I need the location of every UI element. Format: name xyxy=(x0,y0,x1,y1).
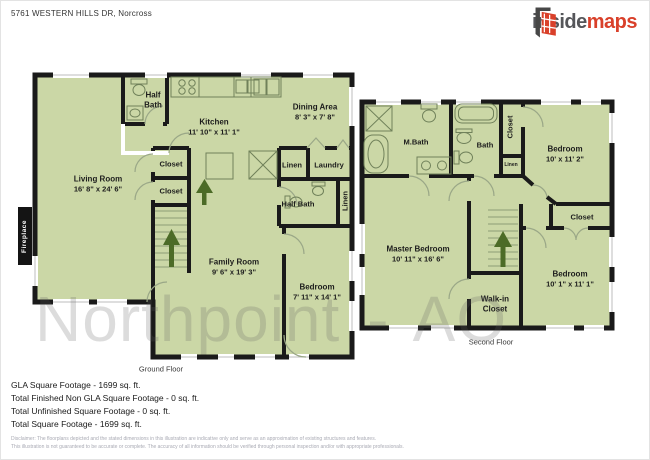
square-footage-summary: GLA Square Footage - 1699 sq. ft. Total … xyxy=(11,379,199,431)
room-label-family: Family Room 9' 6" x 19' 3" xyxy=(209,258,259,277)
room-label-linen: Linen xyxy=(282,161,302,170)
room-label-laundry: Laundry xyxy=(314,161,344,170)
room-label-mbath: M.Bath xyxy=(404,138,429,147)
fireplace-label: Fireplace xyxy=(18,207,32,265)
unfinished-footage-line: Total Unfinished Square Footage - 0 sq. … xyxy=(11,405,199,418)
room-label-linen-second: Linen xyxy=(504,162,517,168)
room-label-closet-right: Closet xyxy=(571,213,594,222)
room-label-dining: Dining Area 8' 3" x 7' 8" xyxy=(293,103,338,122)
non-gla-footage-line: Total Finished Non GLA Square Footage - … xyxy=(11,392,199,405)
room-label-half-bath-top: Half Bath xyxy=(136,90,170,109)
room-label-kitchen: Kitchen 11' 10" x 11' 1" xyxy=(188,118,240,137)
room-label-closet-1: Closet xyxy=(160,160,183,169)
disclaimer-text: Disclaimer: The floorplans depicted and … xyxy=(11,435,631,451)
floorplan-page: { "header": { "address": "5761 WESTERN H… xyxy=(0,0,650,460)
room-label-master: Master Bedroom 10' 11" x 16' 6" xyxy=(386,245,449,264)
room-label-closet-vertical: Closet xyxy=(506,116,515,139)
insidemaps-logo: insidemaps xyxy=(532,11,637,34)
room-label-living: Living Room 16' 8" x 24' 6" xyxy=(74,175,122,194)
room-label-bedroom-2: Bedroom 10' 1" x 11' 1" xyxy=(546,270,594,289)
gla-footage-line: GLA Square Footage - 1699 sq. ft. xyxy=(11,379,199,392)
room-label-bedroom-1: Bedroom 10' x 11' 2" xyxy=(546,145,584,164)
open-door-icon xyxy=(532,6,562,39)
room-label-linen-vertical: Linen xyxy=(341,191,350,211)
room-label-bath: Bath xyxy=(477,141,494,150)
property-address: 5761 WESTERN HILLS DR, Norcross xyxy=(11,9,152,18)
watermark: Northpoint - AO xyxy=(35,287,507,351)
room-label-closet-2: Closet xyxy=(160,187,183,196)
total-footage-line: Total Square Footage - 1699 sq. ft. xyxy=(11,418,199,431)
room-label-half-bath-right: Half Bath xyxy=(282,200,315,209)
ground-floor-caption: Ground Floor xyxy=(139,365,183,374)
